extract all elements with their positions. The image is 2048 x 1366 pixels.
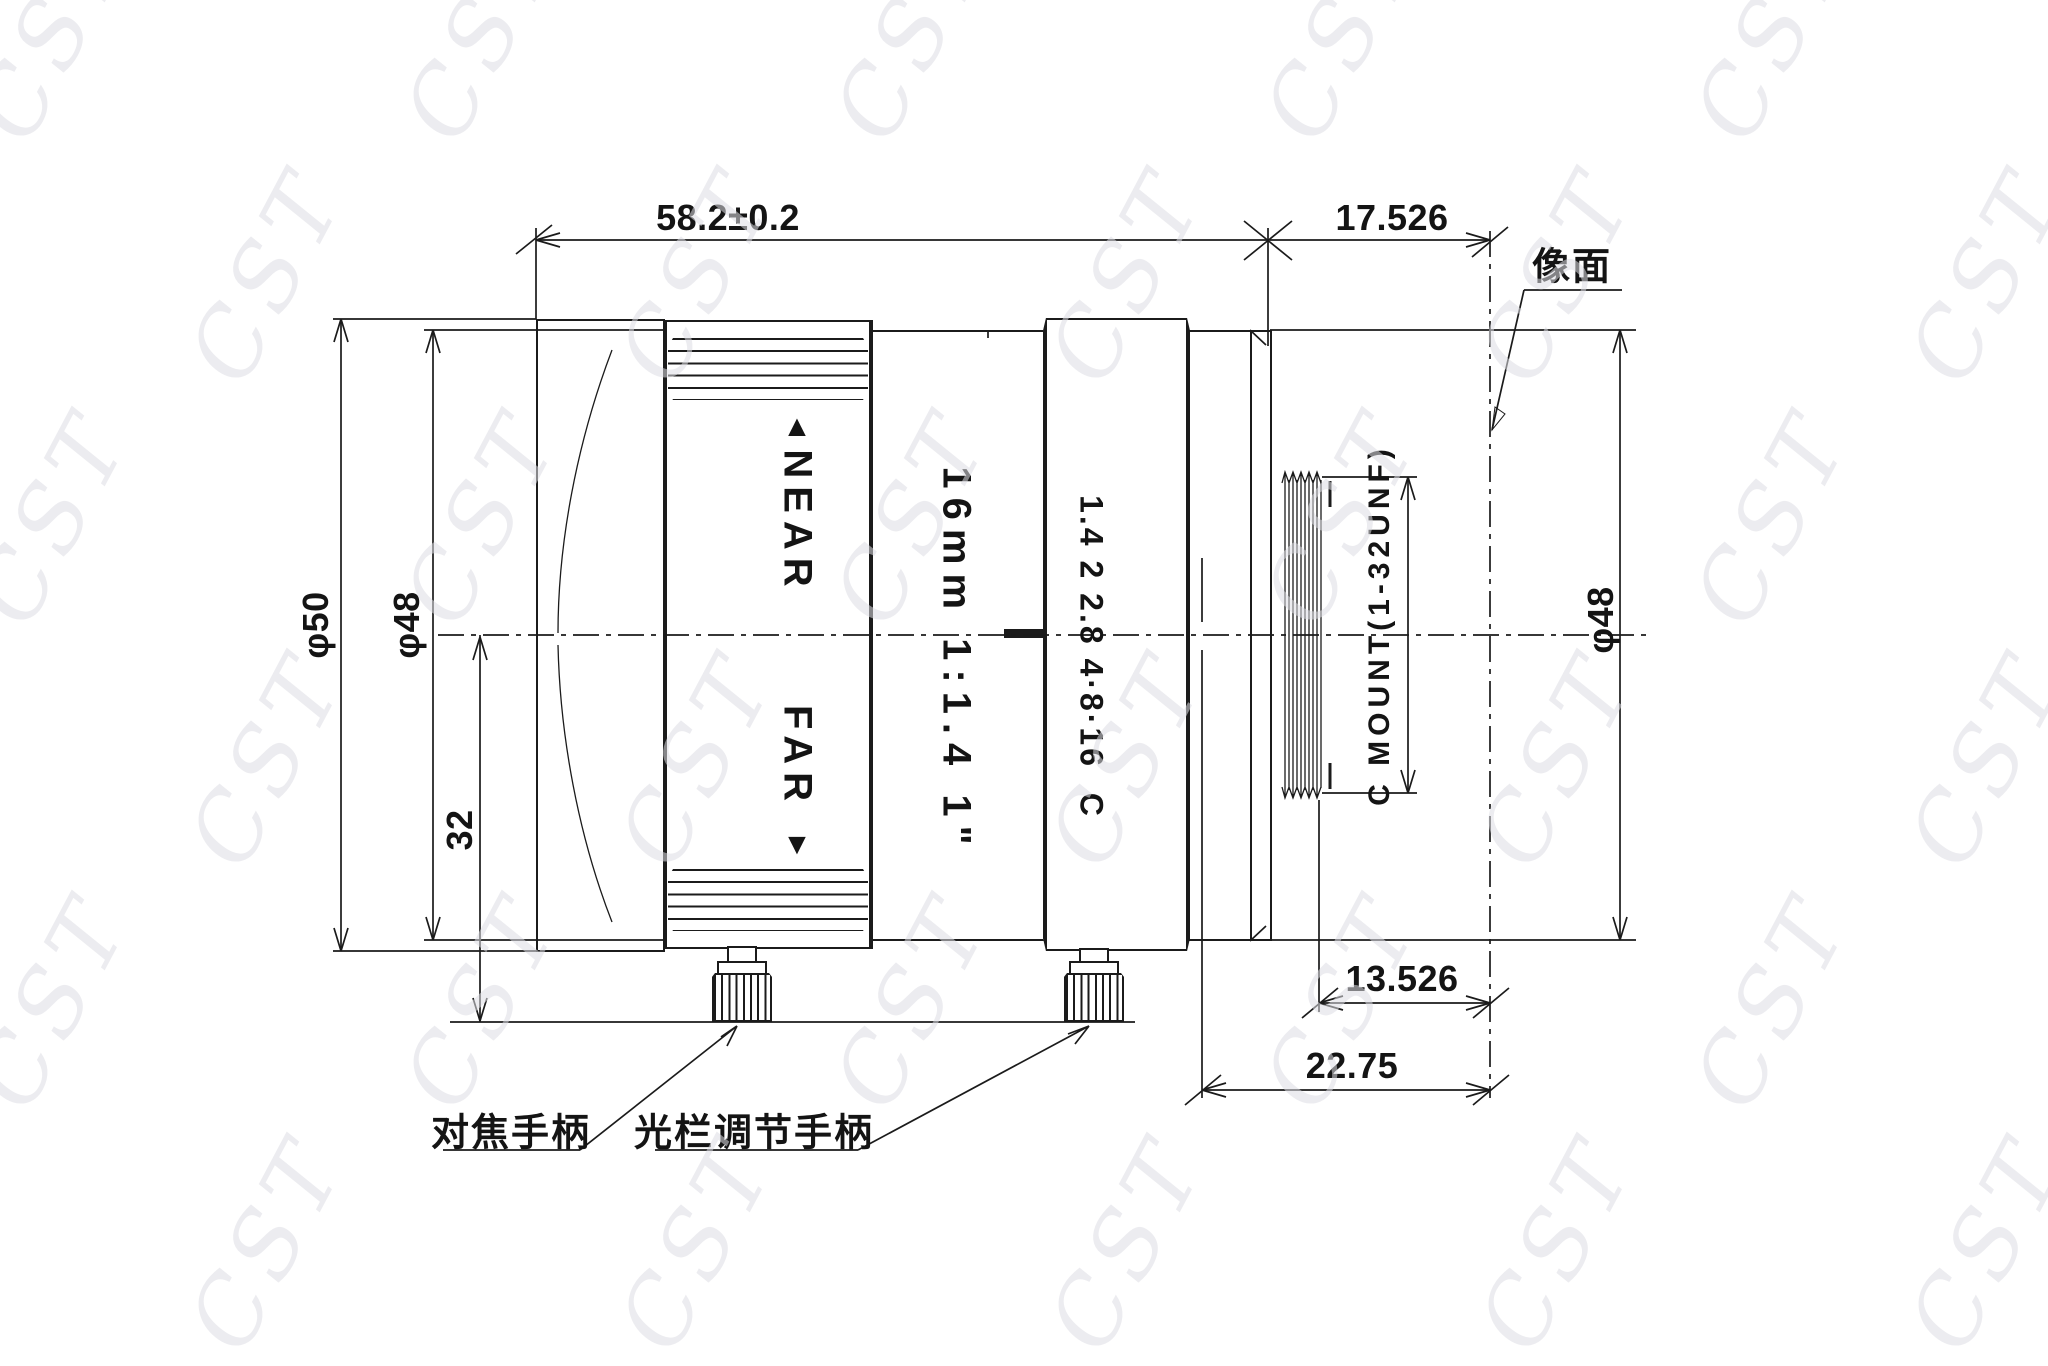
iris-knob — [1064, 973, 1124, 1022]
watermark-text: CST — [1242, 877, 1442, 1126]
aperture-scale-label: 1.4 2 2.8 4·8·16 C — [1073, 495, 1110, 819]
watermark-text: CST — [1672, 0, 1872, 158]
focus-knob — [712, 973, 772, 1022]
watermark-text: CST — [0, 393, 152, 642]
mount-flange — [1250, 330, 1272, 941]
focus-ring-near-label: NEAR — [775, 449, 820, 594]
watermark-text: CST — [382, 0, 582, 158]
dim-handle-offset: 32 — [439, 809, 481, 850]
watermark-text: CST — [1887, 151, 2048, 400]
watermark-text: CST — [167, 1119, 367, 1366]
focal-spec-label: 16mm 1:1.4 1" — [934, 466, 979, 853]
watermark-text: CST — [167, 635, 367, 884]
dim-back-focal: 22.75 — [1306, 1045, 1399, 1087]
aperture-ring — [1043, 318, 1190, 951]
front-barrel — [536, 319, 665, 952]
rear-neck — [1188, 330, 1252, 941]
watermark-text: CST — [812, 0, 1012, 158]
image-plane-label: 像面 — [1532, 236, 1612, 291]
iris-handle-label: 光栏调节手柄 — [634, 1102, 874, 1157]
watermark-text: CST — [0, 0, 152, 158]
dim-flange-back: 17.526 — [1335, 197, 1448, 239]
dim-body-length: 58.2±0.2 — [656, 197, 800, 239]
dim-barrel-diameter: φ48 — [386, 591, 428, 658]
focus-knob-collar — [717, 961, 767, 975]
watermark-text: CST — [167, 151, 367, 400]
focus-handle-label: 对焦手柄 — [431, 1102, 591, 1157]
dim-rear-diameter: φ48 — [1580, 586, 1622, 653]
far-direction-icon: ▼ — [782, 828, 812, 862]
watermark-text: CST — [1457, 635, 1657, 884]
watermark-text: CST — [0, 877, 152, 1126]
focus-ring-far-label: FAR — [775, 705, 820, 809]
watermark-text: CST — [1887, 635, 2048, 884]
watermark-text: CST — [1242, 393, 1442, 642]
watermark-text: CST — [1887, 1119, 2048, 1366]
watermark-text: CST — [1457, 1119, 1657, 1366]
focus-ring-knurl-bottom — [668, 869, 868, 931]
dim-thread-to-image: 13.526 — [1345, 958, 1458, 1000]
mount-thread-label: C MOUNT(1-32UNF) — [1363, 444, 1397, 806]
focus-ring — [663, 320, 873, 949]
watermark-text: CST — [1027, 1119, 1227, 1366]
near-direction-icon: ▲ — [782, 410, 812, 444]
watermark-text: CST — [1672, 877, 1872, 1126]
watermark-text: CST — [1672, 393, 1872, 642]
iris-knob-collar — [1069, 961, 1119, 975]
watermark-text: CST — [1242, 0, 1442, 158]
dim-front-diameter: φ50 — [295, 591, 337, 658]
aperture-index-mark — [1004, 629, 1044, 638]
focus-ring-knurl-top — [668, 338, 868, 400]
lens-technical-drawing: 58.2±0.2 17.526 φ50 φ48 32 φ48 13.526 22… — [0, 0, 2048, 1366]
